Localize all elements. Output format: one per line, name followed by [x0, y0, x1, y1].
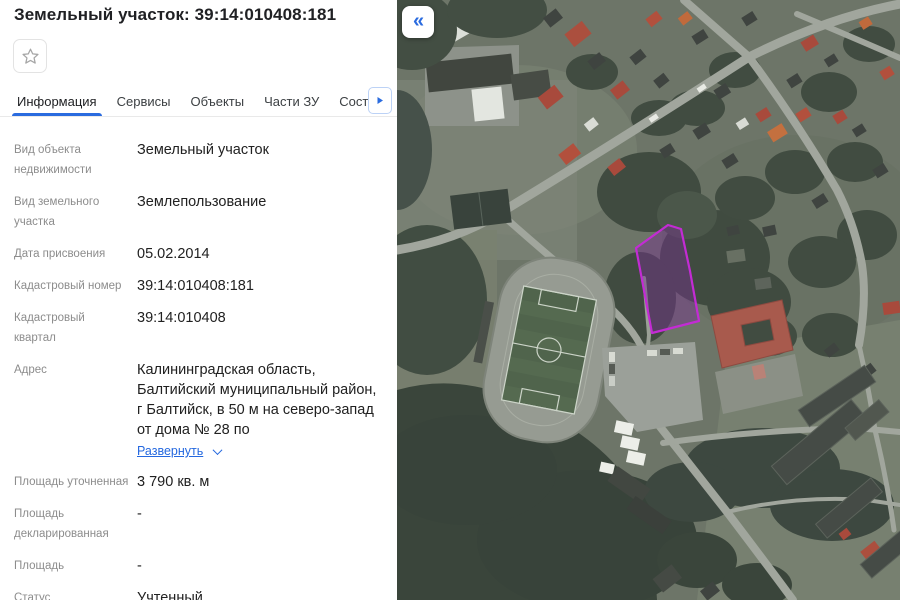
favorite-button[interactable]	[13, 39, 47, 73]
tab-services[interactable]: Сервисы	[117, 86, 171, 116]
field-row-area-declared: Площадь декларированная -	[14, 504, 385, 544]
field-row-object-type: Вид объекта недвижимости Земельный участ…	[14, 140, 385, 180]
field-label: Кадастровый квартал	[14, 308, 137, 348]
field-label: Площадь декларированная	[14, 504, 137, 544]
field-label: Вид земельного участка	[14, 192, 137, 232]
field-value: Земельный участок	[137, 140, 385, 160]
field-label: Площадь уточненная	[14, 472, 137, 492]
chevrons-left-icon: «	[413, 11, 423, 31]
star-icon	[21, 47, 40, 66]
field-label: Статус	[14, 588, 137, 600]
tab-bar: Информация Сервисы Объекты Части ЗУ Сост…	[0, 86, 397, 117]
field-value: 39:14:010408:181	[137, 276, 385, 296]
map-area[interactable]: «	[397, 0, 900, 600]
chevron-down-icon	[213, 445, 223, 455]
field-value: 05.02.2014	[137, 244, 385, 264]
field-row-status: Статус Учтенный	[14, 588, 385, 600]
field-value: 3 790 кв. м	[137, 472, 385, 492]
field-value: -	[137, 556, 385, 576]
field-label: Адрес	[14, 360, 137, 460]
field-list: Вид объекта недвижимости Земельный участ…	[14, 140, 385, 600]
cadastral-map-app: Земельный участок: 39:14:010408:181 Инфо…	[0, 0, 900, 600]
field-row-cadastral-block: Кадастровый квартал 39:14:010408	[14, 308, 385, 348]
field-row-date-assigned: Дата присвоения 05.02.2014	[14, 244, 385, 264]
triangle-right-icon	[376, 96, 384, 105]
field-label: Вид объекта недвижимости	[14, 140, 137, 180]
info-panel: Земельный участок: 39:14:010408:181 Инфо…	[0, 0, 397, 600]
satellite-map	[397, 0, 900, 600]
tab-parcel-parts[interactable]: Части ЗУ	[264, 86, 319, 116]
collapse-panel-button[interactable]: «	[402, 6, 434, 38]
field-value: Землепользование	[137, 192, 385, 212]
field-row-area-refined: Площадь уточненная 3 790 кв. м	[14, 472, 385, 492]
field-value: Калининградская область, Балтийский муни…	[137, 360, 385, 440]
field-label: Дата присвоения	[14, 244, 137, 264]
field-label: Площадь	[14, 556, 137, 576]
tab-information[interactable]: Информация	[17, 86, 97, 116]
field-value: -	[137, 504, 385, 524]
tabs-scroll-right-button[interactable]	[368, 87, 392, 114]
field-row-parcel-type: Вид земельного участка Землепользование	[14, 192, 385, 232]
page-title: Земельный участок: 39:14:010408:181	[14, 5, 336, 25]
field-value: 39:14:010408	[137, 308, 385, 328]
field-row-area: Площадь -	[14, 556, 385, 576]
tab-objects[interactable]: Объекты	[190, 86, 244, 116]
field-label: Кадастровый номер	[14, 276, 137, 296]
field-row-cadastral-number: Кадастровый номер 39:14:010408:181	[14, 276, 385, 296]
field-row-address: Адрес Калининградская область, Балтийски…	[14, 360, 385, 460]
field-value: Учтенный	[137, 588, 385, 600]
expand-address-link[interactable]: Развернуть	[137, 444, 221, 458]
